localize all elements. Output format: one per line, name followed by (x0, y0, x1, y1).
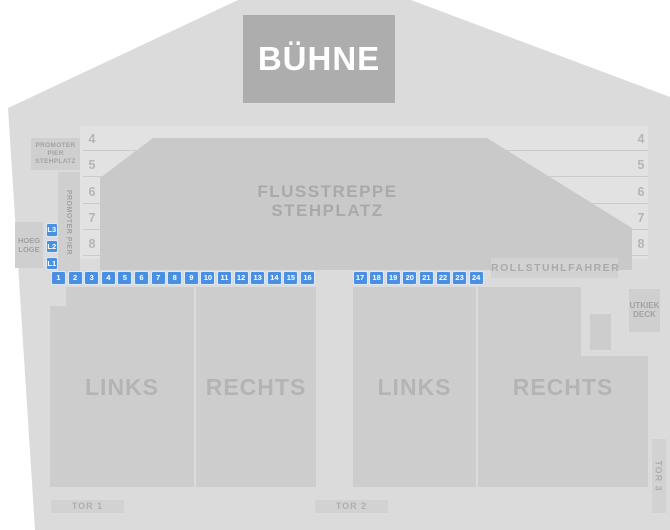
seat-21[interactable]: 21 (419, 271, 434, 285)
seat-18[interactable]: 18 (369, 271, 384, 285)
seat-23[interactable]: 23 (452, 271, 467, 285)
area-promoter-pier: PROMOTER PIER (58, 172, 80, 273)
row-number-left-4: 4 (84, 131, 100, 147)
area-promoter-pier-stehplatz: PROMOTER PIER STEHPLATZ (31, 138, 80, 170)
section-links-2: LINKS (353, 287, 476, 487)
row-number-left-6: 6 (84, 184, 100, 200)
row-line (83, 229, 648, 230)
seat-14[interactable]: 14 (267, 271, 282, 285)
row-number-right-4: 4 (633, 131, 649, 147)
venue-seat-map: FLUSSTREPPE STEHPLATZ BÜHNE PROMOTER PIE… (0, 0, 670, 530)
row-number-left-5: 5 (84, 157, 100, 173)
row-number-right-8: 8 (633, 236, 649, 252)
stage-label: BÜHNE (258, 40, 380, 78)
row-line (83, 150, 648, 151)
gate-tor-1: TOR 1 (51, 500, 124, 513)
area-rollstuhlfahrer: ROLLSTUHLFAHRER (491, 258, 618, 278)
seat-12[interactable]: 12 (234, 271, 249, 285)
row-number-right-5: 5 (633, 157, 649, 173)
seat-24[interactable]: 24 (469, 271, 484, 285)
seat-7[interactable]: 7 (151, 271, 166, 285)
seat-2[interactable]: 2 (68, 271, 83, 285)
seat-22[interactable]: 22 (436, 271, 451, 285)
seat-11[interactable]: 11 (217, 271, 232, 285)
loge-seat-L3[interactable]: L3 (46, 223, 58, 237)
area-utkiek-deck: UTKIEK DECK (629, 289, 660, 332)
seat-1[interactable]: 1 (51, 271, 66, 285)
loge-seat-L1[interactable]: L1 (46, 257, 58, 271)
seat-15[interactable]: 15 (283, 271, 298, 285)
loge-seat-L2[interactable]: L2 (46, 240, 58, 254)
seat-19[interactable]: 19 (386, 271, 401, 285)
seat-16[interactable]: 16 (300, 271, 315, 285)
row-number-left-7: 7 (84, 210, 100, 226)
row-number-left-8: 8 (84, 236, 100, 252)
seat-13[interactable]: 13 (250, 271, 265, 285)
utkiek-deck-structure (590, 314, 611, 350)
seat-20[interactable]: 20 (402, 271, 417, 285)
seat-17[interactable]: 17 (353, 271, 368, 285)
row-line (83, 255, 648, 256)
row-line (83, 203, 648, 204)
gate-tor-3: TOR 3 (652, 439, 666, 513)
gate-tor-2: TOR 2 (315, 500, 388, 513)
row-number-right-7: 7 (633, 210, 649, 226)
seat-9[interactable]: 9 (184, 271, 199, 285)
section-links-1: LINKS (50, 287, 194, 487)
area-hoeg-loge: HOEG LOGE (15, 222, 43, 268)
stage-buehne: BÜHNE (243, 15, 395, 103)
section-rechts-1: RECHTS (196, 287, 316, 487)
flusstreppe-label: FLUSSTREPPE STEHPLATZ (100, 182, 555, 220)
seat-5[interactable]: 5 (117, 271, 132, 285)
seat-10[interactable]: 10 (200, 271, 215, 285)
row-line (83, 176, 648, 177)
row-number-right-6: 6 (633, 184, 649, 200)
seat-6[interactable]: 6 (134, 271, 149, 285)
seat-3[interactable]: 3 (84, 271, 99, 285)
seat-8[interactable]: 8 (167, 271, 182, 285)
seat-4[interactable]: 4 (101, 271, 116, 285)
